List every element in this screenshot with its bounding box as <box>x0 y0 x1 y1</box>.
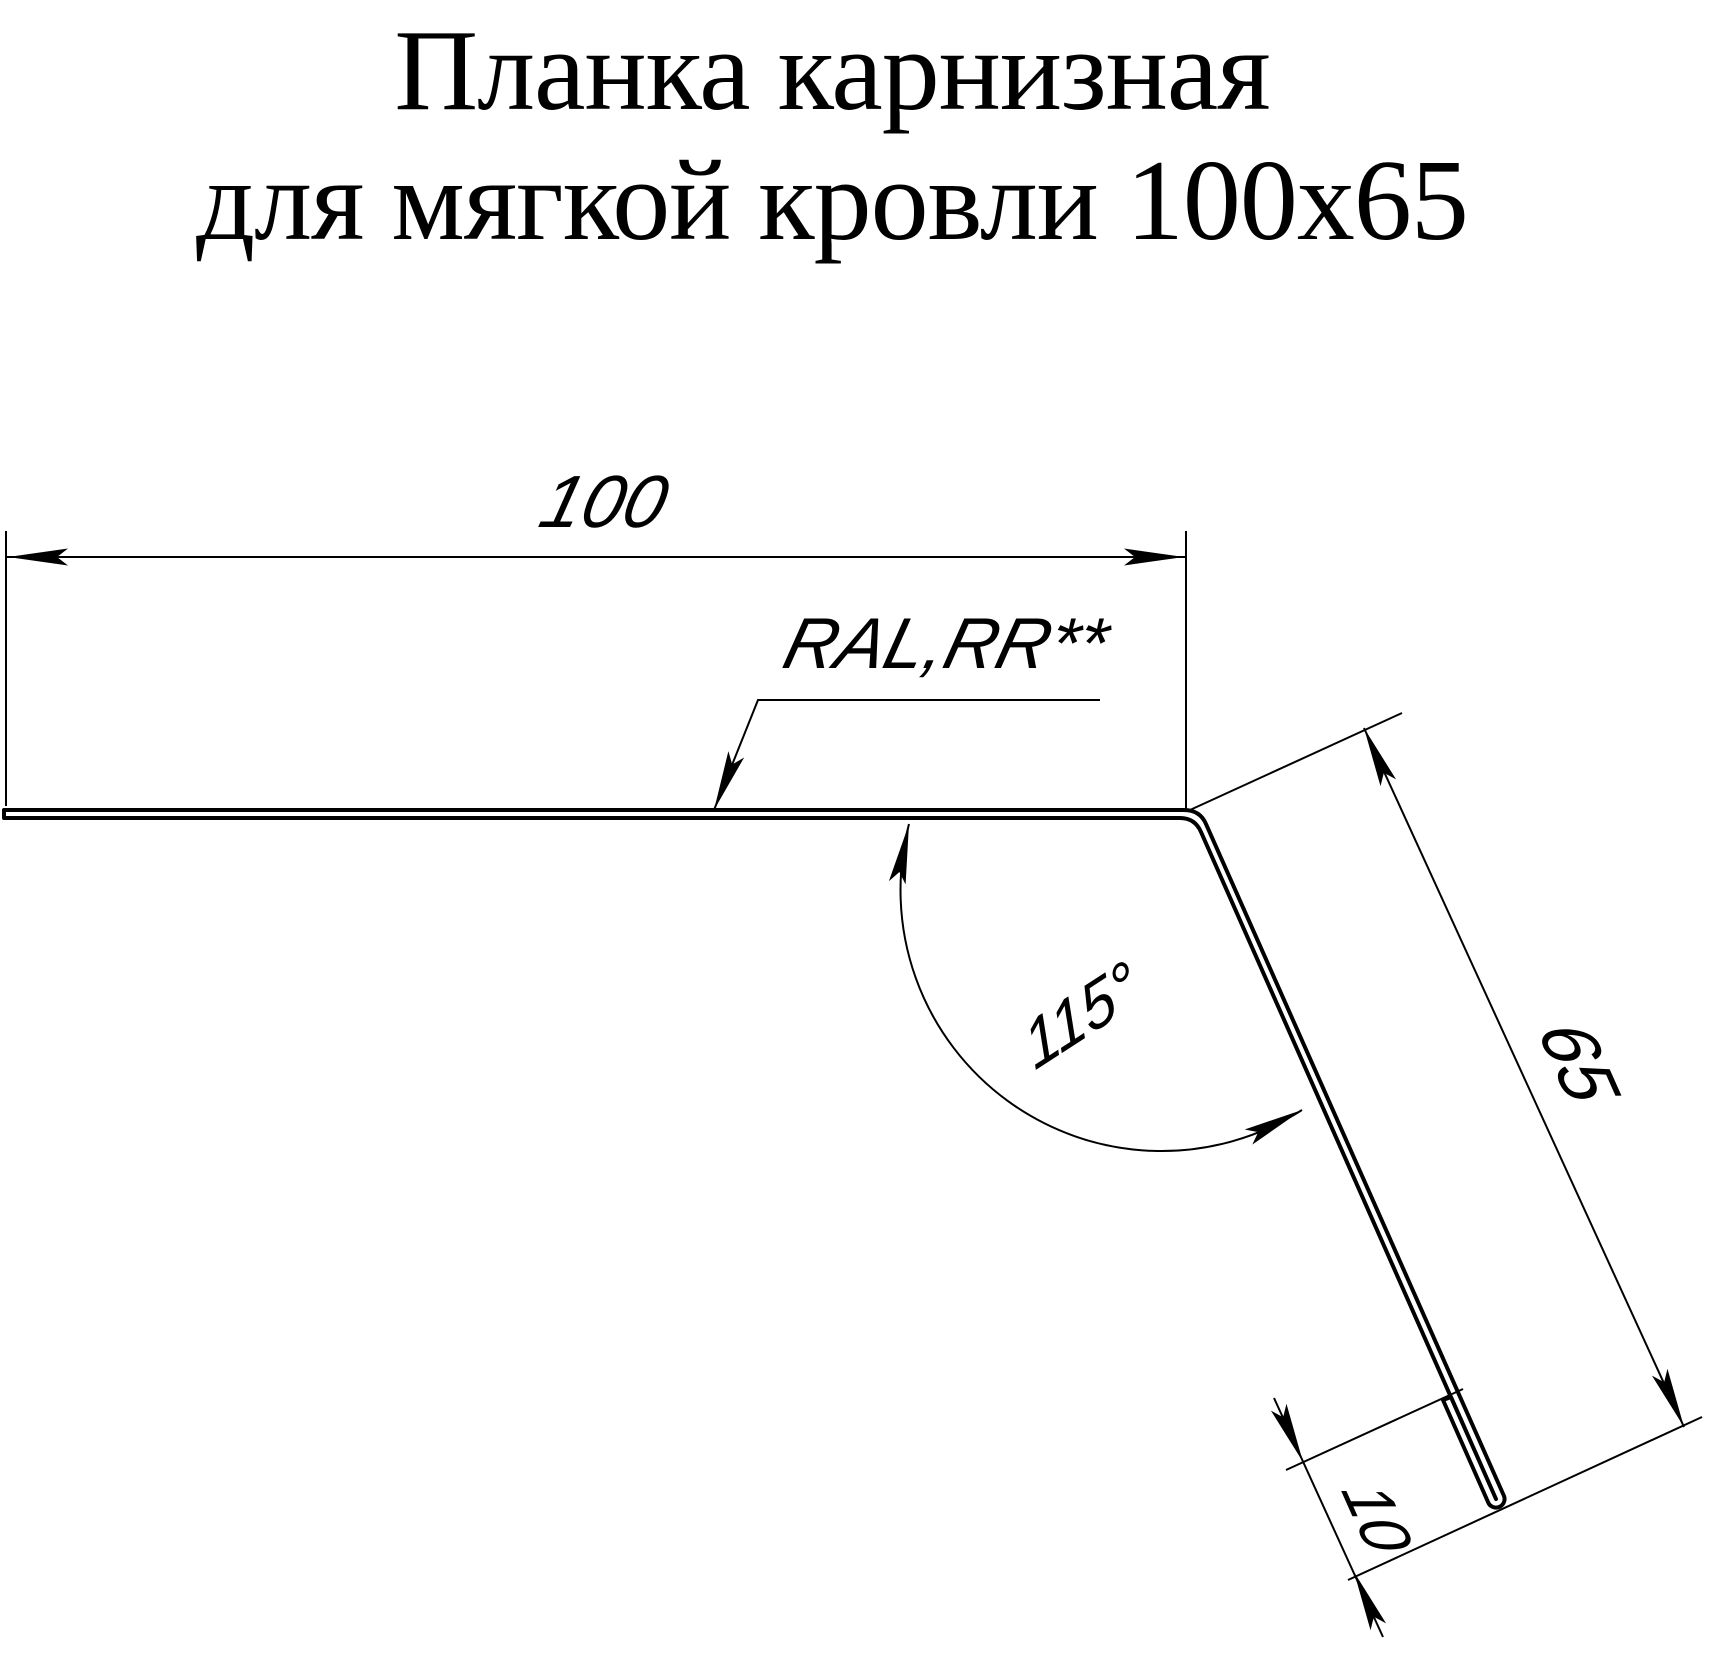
dim-angle-115: 115° <box>889 822 1306 1151</box>
dim-10: 10 <box>1271 1389 1463 1637</box>
drawing-canvas: 100 65 10 115° RAL,RR** <box>0 0 1713 1661</box>
technical-drawing-page: { "title": { "line1": "Планка карнизная"… <box>0 0 1713 1661</box>
coating-leader: RAL,RR** <box>706 604 1118 813</box>
dim-10-extension-top <box>1286 1389 1463 1470</box>
dim-100-label: 100 <box>532 460 676 543</box>
dim-angle-label: 115° <box>1015 945 1146 1085</box>
dim-65: 65 <box>1190 713 1702 1580</box>
leader-arrow <box>706 751 744 813</box>
leader-line <box>714 700 1100 810</box>
coating-label: RAL,RR** <box>776 604 1118 684</box>
dim-arrow <box>1271 1404 1311 1466</box>
profile-outline <box>4 810 1505 1508</box>
dim-65-extension-top <box>1190 713 1402 810</box>
dim-arrow <box>1356 725 1396 787</box>
dim-arrow <box>889 822 917 884</box>
dim-65-line <box>1364 728 1684 1427</box>
dim-arrow <box>1245 1102 1306 1144</box>
dim-arrow <box>1652 1369 1692 1431</box>
dim-65-label: 65 <box>1520 1017 1638 1107</box>
